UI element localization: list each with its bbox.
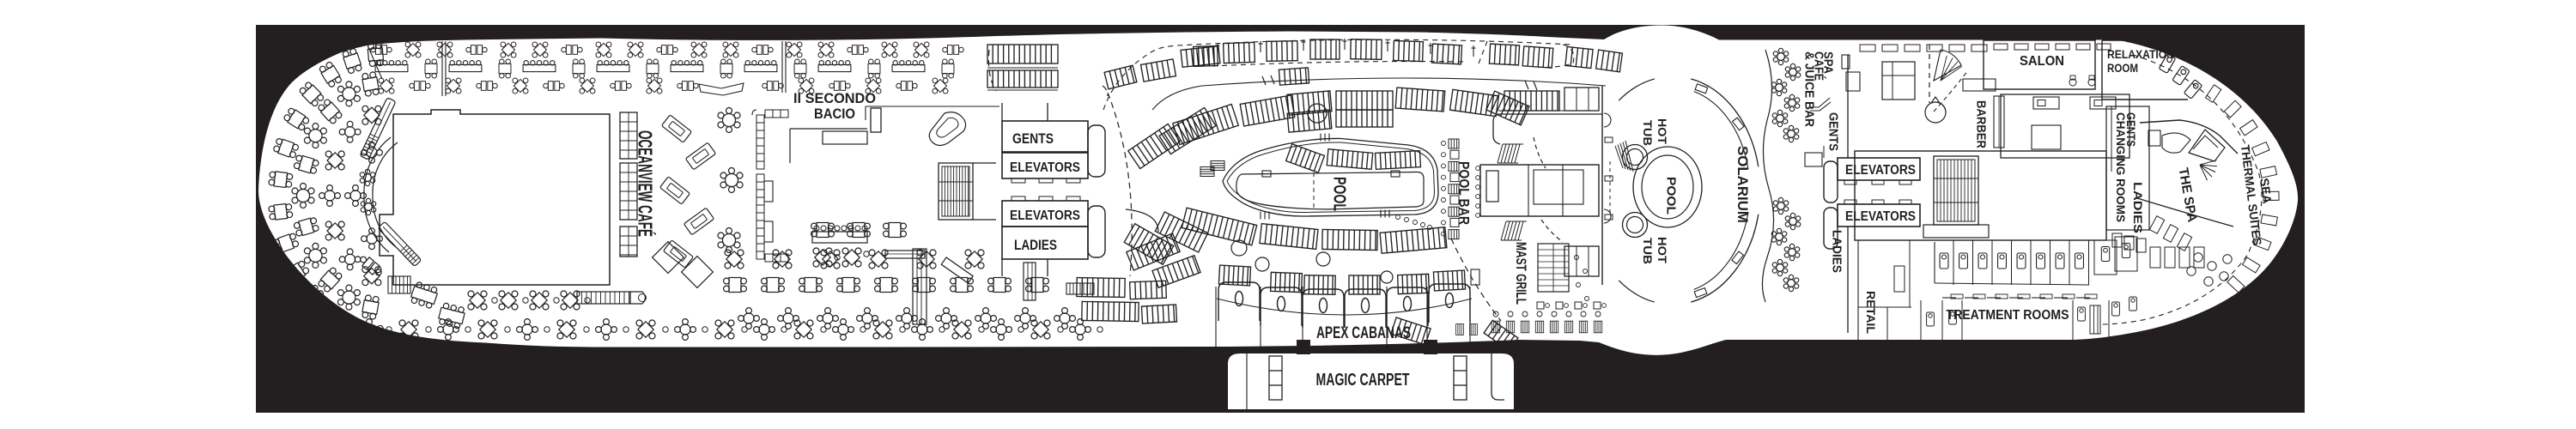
svg-text:HOT: HOT <box>1656 237 1669 263</box>
svg-text:BARBER: BARBER <box>1974 100 1988 148</box>
svg-text:ELEVATORS: ELEVATORS <box>1845 209 1916 224</box>
svg-text:POOL: POOL <box>1664 177 1679 214</box>
svg-text:LADIES: LADIES <box>1014 238 1057 253</box>
svg-text:GENTS: GENTS <box>1012 131 1054 147</box>
svg-text:MAGIC CARPET: MAGIC CARPET <box>1316 371 1410 390</box>
svg-text:GENTS: GENTS <box>1826 112 1840 151</box>
svg-text:CHANGING ROOMS: CHANGING ROOMS <box>2114 112 2127 222</box>
svg-text:LADIES: LADIES <box>1830 230 1844 273</box>
svg-text:LADIES: LADIES <box>2131 182 2145 233</box>
svg-text:TUB: TUB <box>1641 238 1655 264</box>
svg-text:OCEANVIEW CAFÉ: OCEANVIEW CAFÉ <box>635 130 658 237</box>
svg-text:& JUICE BAR: & JUICE BAR <box>1802 51 1816 127</box>
svg-text:SALON: SALON <box>2020 54 2064 69</box>
svg-text:ELEVATORS: ELEVATORS <box>1010 208 1080 223</box>
svg-text:RETAIL: RETAIL <box>1864 291 1877 334</box>
svg-text:HOT: HOT <box>1656 118 1669 144</box>
svg-text:MAST GRILL: MAST GRILL <box>1513 242 1528 305</box>
svg-text:ELEVATORS: ELEVATORS <box>1845 163 1916 178</box>
svg-text:POOL: POOL <box>1330 177 1349 211</box>
svg-text:II SECONDO: II SECONDO <box>793 90 876 106</box>
svg-text:ROOM: ROOM <box>2107 62 2138 75</box>
svg-text:TUB: TUB <box>1641 120 1655 146</box>
svg-text:BACIO: BACIO <box>814 106 855 122</box>
svg-text:TREATMENT ROOMS: TREATMENT ROOMS <box>1947 308 2069 323</box>
svg-text:SOLARIUM: SOLARIUM <box>1735 146 1750 223</box>
svg-text:ELEVATORS: ELEVATORS <box>1010 160 1080 175</box>
